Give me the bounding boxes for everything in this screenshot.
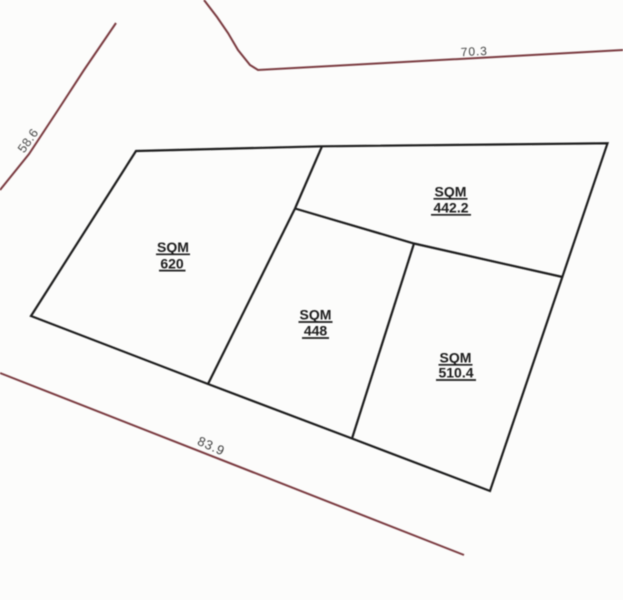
svg-text:448: 448 — [304, 323, 328, 339]
svg-text:SQM: SQM — [435, 184, 467, 200]
svg-text:442.2: 442.2 — [433, 200, 468, 216]
svg-text:510.4: 510.4 — [438, 365, 473, 381]
svg-text:SQM: SQM — [157, 239, 189, 255]
svg-text:70.3: 70.3 — [460, 44, 488, 59]
svg-text:SQM: SQM — [300, 307, 332, 323]
svg-text:83.9: 83.9 — [195, 433, 227, 458]
svg-text:620: 620 — [160, 255, 184, 271]
svg-text:SQM: SQM — [440, 350, 472, 366]
